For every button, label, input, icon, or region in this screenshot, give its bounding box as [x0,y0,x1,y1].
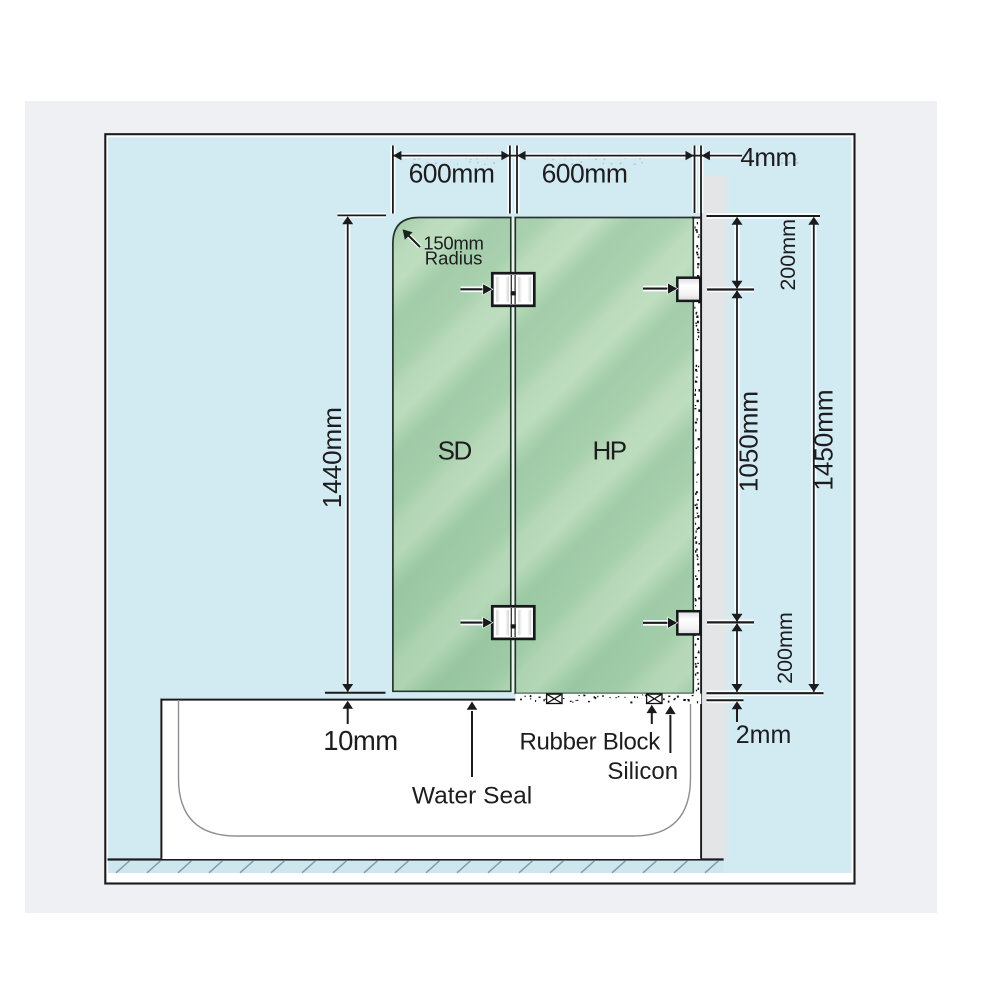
svg-text:10mm: 10mm [323,725,397,756]
svg-text:1450mm: 1450mm [809,389,839,490]
svg-text:SD: SD [438,436,472,466]
svg-text:HP: HP [592,436,625,466]
svg-text:600mm: 600mm [409,159,495,189]
svg-text:Radius: Radius [425,248,483,269]
svg-text:Silicon: Silicon [607,758,678,785]
svg-text:Water Seal: Water Seal [412,783,532,810]
svg-text:2mm: 2mm [736,721,792,749]
svg-text:1050mm: 1050mm [734,391,764,492]
svg-text:4mm: 4mm [740,142,796,172]
svg-text:200mm: 200mm [773,612,797,684]
svg-text:Rubber Block: Rubber Block [519,729,661,756]
svg-text:200mm: 200mm [776,219,800,291]
svg-text:600mm: 600mm [542,159,628,189]
svg-text:1440mm: 1440mm [317,407,347,508]
